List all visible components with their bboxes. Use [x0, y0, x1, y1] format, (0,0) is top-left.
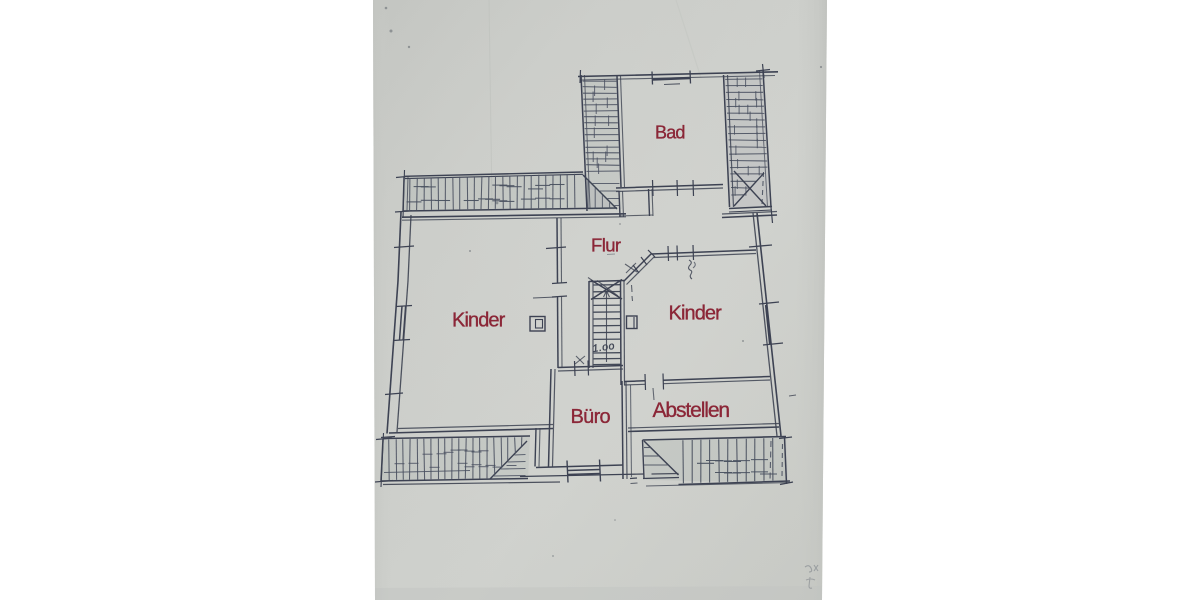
svg-text:Abstellen: Abstellen — [653, 399, 730, 422]
svg-text:Kinder: Kinder — [452, 310, 506, 332]
svg-text:Bad: Bad — [655, 123, 685, 143]
svg-text:Kinder: Kinder — [669, 303, 723, 325]
svg-text:Flur: Flur — [591, 235, 621, 256]
svg-text:Büro: Büro — [571, 406, 611, 428]
